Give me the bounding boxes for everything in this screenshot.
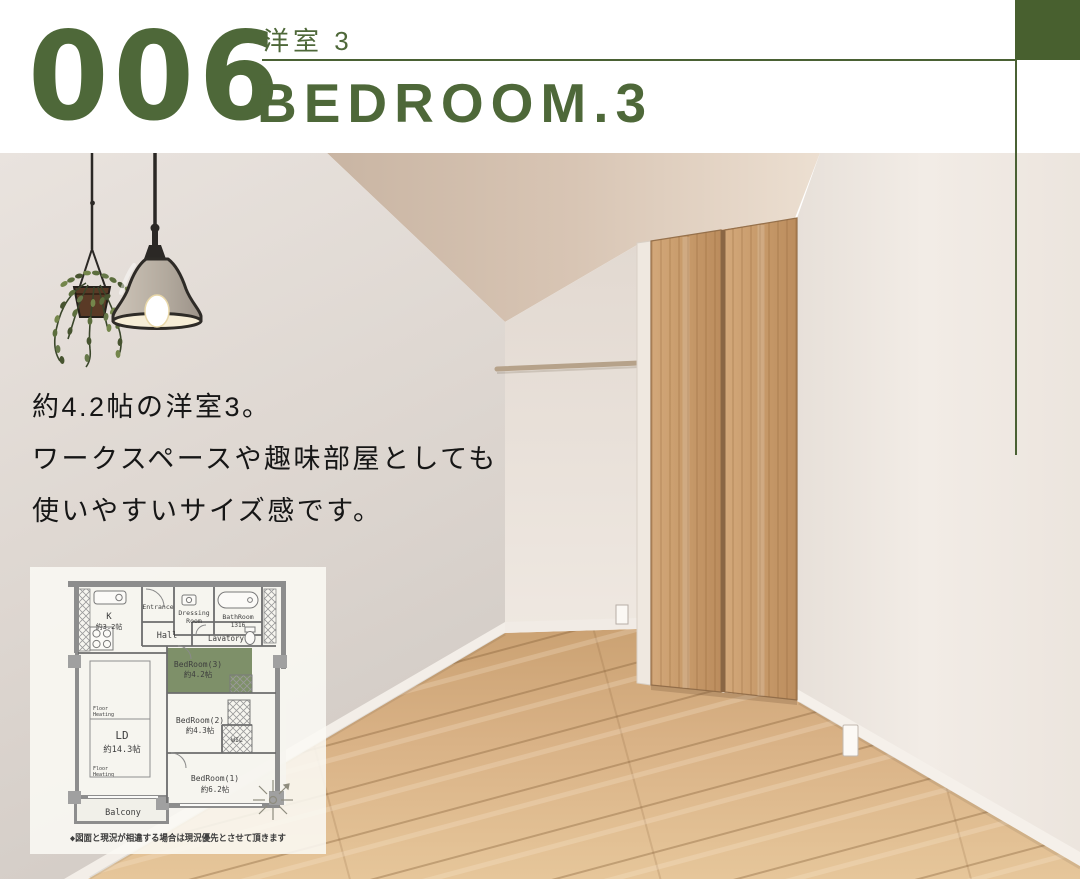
room-label-jp: 洋室 3	[263, 21, 353, 58]
lamp-bulb	[145, 295, 169, 327]
floorplan-room-bedroom2-size: 約4.3帖	[186, 725, 215, 735]
floorplan-room-bedroom3: BedRoom(3)	[174, 660, 222, 669]
floorplan-room-hall: Hall	[157, 631, 177, 641]
floorplan-room-dressing: Dressing	[178, 609, 209, 617]
vertical-accent-line	[1015, 60, 1017, 455]
description-line: ワークスペースや趣味部屋としても	[32, 433, 498, 485]
svg-text:Room: Room	[186, 617, 202, 625]
floorplan-room-entrance: Entrance	[142, 603, 173, 611]
floorplan-room-bathroom: BathRoom	[222, 613, 253, 621]
description-line: 使いやすいサイズ感です。	[32, 485, 498, 537]
wall-outlet-back	[616, 605, 628, 624]
room-title-en: BEDROOM.3	[257, 71, 653, 135]
kitchen-sink-icon	[94, 591, 126, 604]
svg-text:Heating: Heating	[93, 712, 114, 718]
description-line: 約4.2帖の洋室3。	[32, 381, 498, 433]
floorplan-room-wic: WIC	[231, 736, 243, 744]
floorplan-room-k: K	[106, 612, 112, 622]
closet-door-gap	[721, 230, 725, 692]
floorplan-room-bedroom1: BedRoom(1)	[191, 774, 239, 783]
floorplan-room-k-size: 約3.2帖	[96, 622, 123, 631]
closet-frame	[637, 241, 651, 685]
floorplan-room-lavatory: Lavatory	[208, 634, 245, 643]
floorplan-caption: ◆図面と現況が相違する場合は現況優先とさせて頂きます	[70, 832, 286, 844]
floorplan-room-bedroom1-size: 約6.2帖	[201, 784, 230, 794]
floorplan-room-bedroom2: BedRoom(2)	[176, 716, 224, 725]
svg-text:1316: 1316	[231, 622, 246, 629]
closet	[637, 218, 797, 705]
floorplan-room-balcony: Balcony	[105, 808, 141, 818]
page: 006 洋室 3 BEDROOM.3	[0, 0, 1080, 879]
dressing-sink-icon	[182, 595, 196, 605]
floorplan-room-ld: LD	[115, 729, 128, 742]
description-text: 約4.2帖の洋室3。 ワークスペースや趣味部屋としても 使いやすいサイズ感です。	[32, 381, 498, 537]
header-divider-line	[262, 59, 1015, 61]
wall-outlet-right	[843, 725, 858, 756]
corner-accent-square	[1015, 0, 1080, 60]
toilet-icon	[245, 632, 255, 645]
floorplan-drawing: K 約3.2帖 Entrance Dressing Room BathRoom …	[30, 567, 326, 854]
floorplan-card: K 約3.2帖 Entrance Dressing Room BathRoom …	[30, 567, 326, 854]
floorplan-room-bedroom3-size: 約4.2帖	[184, 669, 213, 679]
section-number: 006	[28, 16, 237, 138]
floorplan-room-ld-size: 約14.3帖	[103, 744, 141, 755]
